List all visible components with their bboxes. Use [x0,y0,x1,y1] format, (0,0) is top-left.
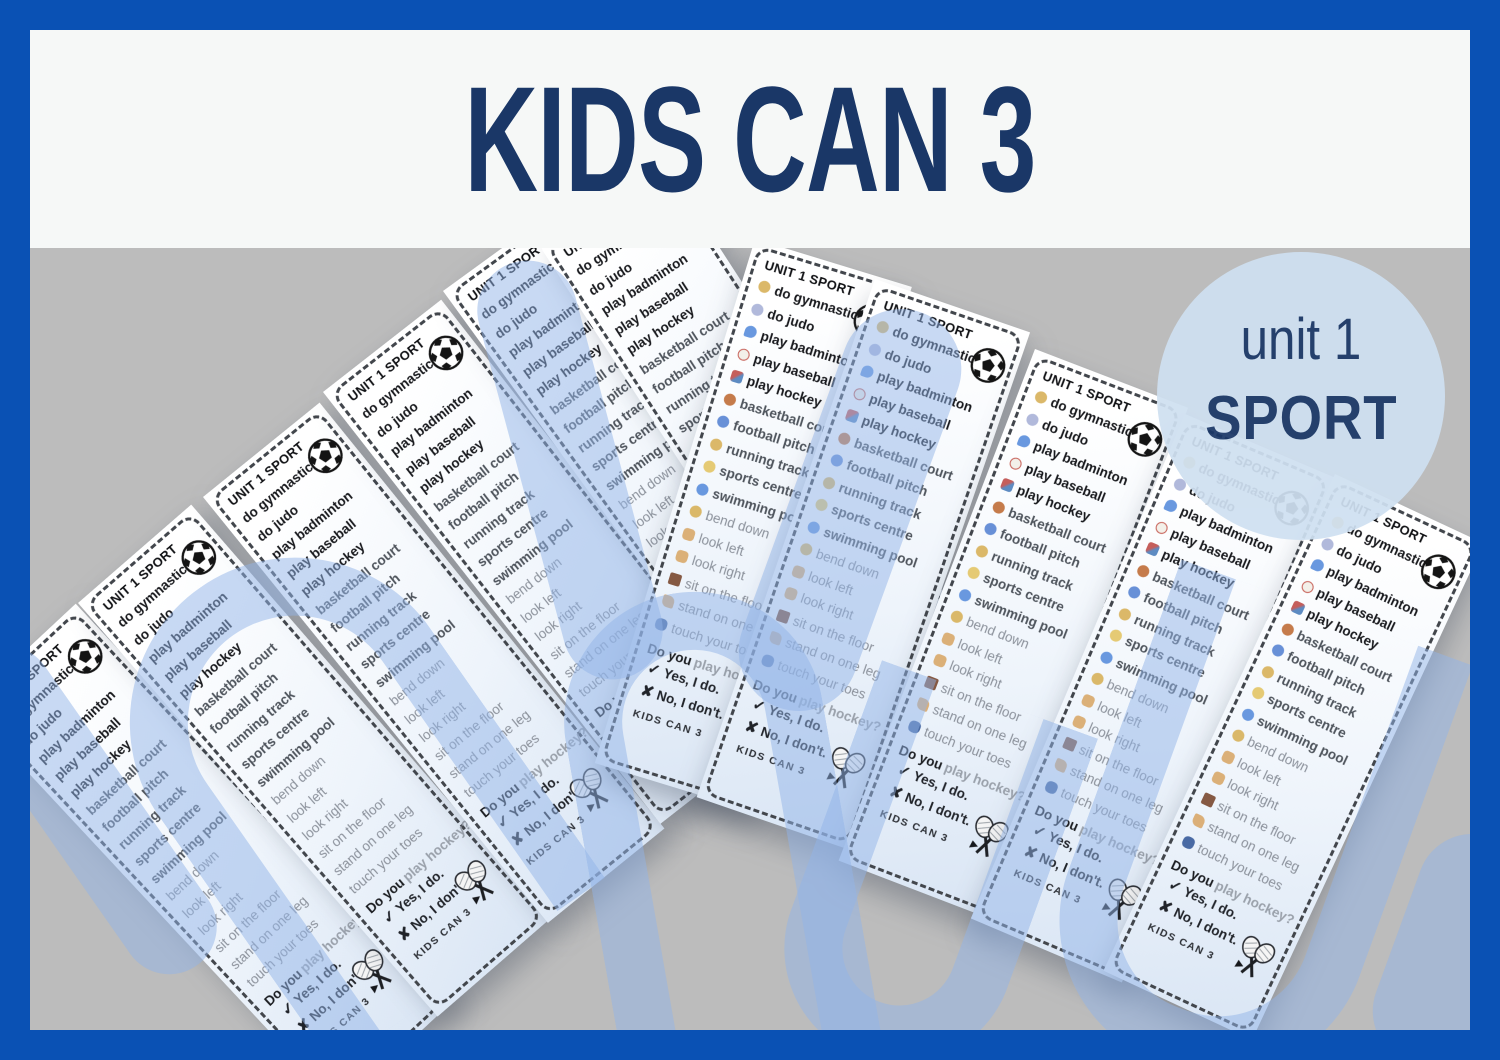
poster: UNIT 1 SPORT do gymnasticsdo judoplay ba… [0,0,1500,1060]
unit-badge: unit 1 SPORT [1157,252,1445,540]
unit-badge-line1: unit 1 [1241,308,1362,372]
title-band: KIDS CAN 3 [30,30,1470,248]
unit-badge-line2: SPORT [1205,382,1397,456]
page-title: KIDS CAN 3 [464,53,1035,226]
